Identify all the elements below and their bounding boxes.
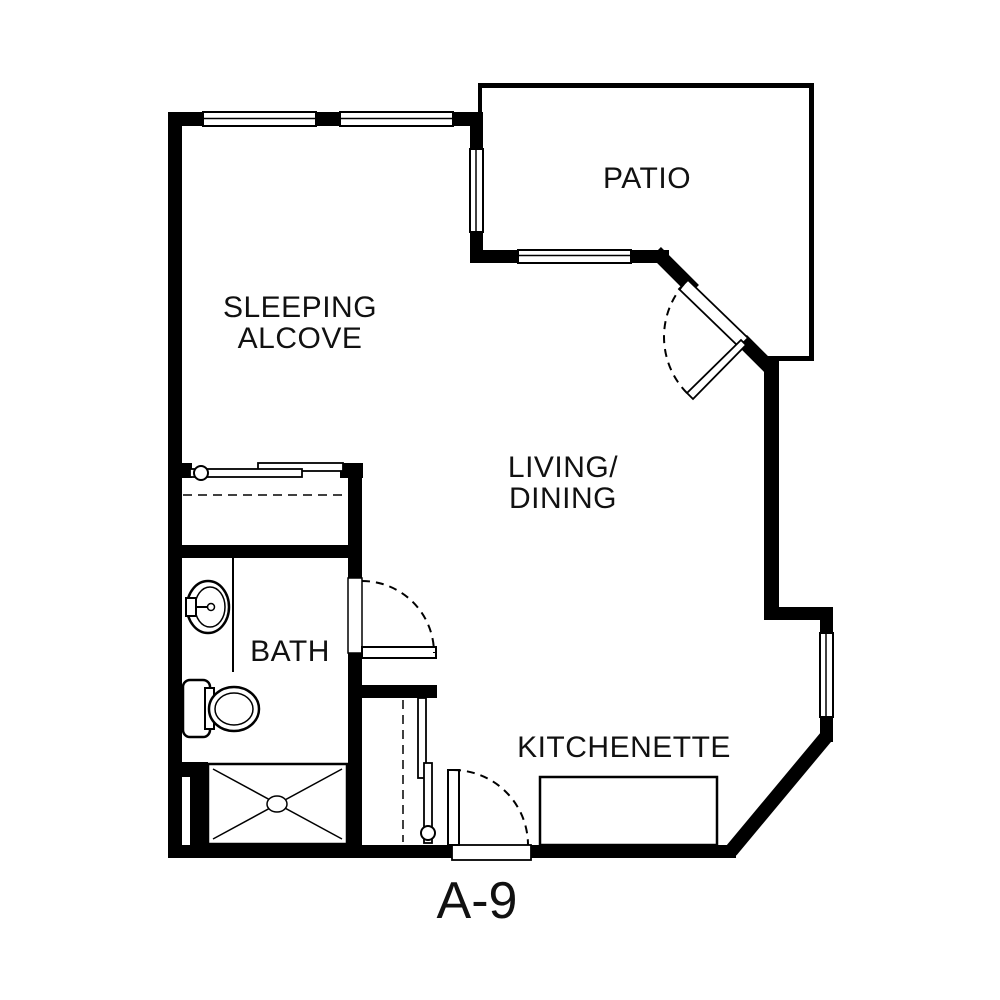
entry-door-leaf xyxy=(448,770,459,845)
ne-corner-block xyxy=(470,124,483,150)
bath-east-wall-upper xyxy=(348,463,362,578)
window-top-1 xyxy=(203,112,316,126)
patio-door-opening xyxy=(679,280,748,347)
bath-door-swing-arc xyxy=(362,581,434,653)
floor-plan-drawing: SLEEPING ALCOVE LIVING/ DINING PATIO BAT… xyxy=(0,0,1000,1000)
patio-wall-top xyxy=(478,83,814,88)
kitchenette-label: KITCHENETTE xyxy=(517,731,731,764)
living-patio-wall-west xyxy=(470,250,518,263)
sink-drain xyxy=(208,604,215,611)
sink-faucet-body xyxy=(186,598,196,616)
windows xyxy=(203,112,833,717)
upper-closet-handle xyxy=(194,466,208,480)
top-wall-right xyxy=(453,112,483,126)
lower-closet xyxy=(403,698,435,843)
bottom-wall-right xyxy=(531,845,736,858)
walls xyxy=(168,112,833,858)
sleeping-alcove-label-line1: SLEEPING xyxy=(223,291,377,324)
right-wall-mid xyxy=(764,356,779,620)
patio-door xyxy=(664,280,748,399)
right-wall-lower-a xyxy=(820,607,833,635)
bath-north-wall xyxy=(175,545,362,558)
patio-door-leaf xyxy=(687,340,746,399)
bottom-wall-left xyxy=(168,845,452,858)
shower-drain xyxy=(267,796,287,812)
toilet-shower-stub-wall xyxy=(175,762,208,777)
bath-door xyxy=(348,578,436,658)
patio-wall-right xyxy=(809,83,814,361)
patio-door-swing-arc xyxy=(664,284,689,395)
bath-east-wall-lower xyxy=(348,653,362,858)
top-wall-mid xyxy=(316,112,340,126)
kitchenette-counter xyxy=(540,777,717,845)
alcove-closet-wall-left xyxy=(168,463,192,478)
upper-closet xyxy=(183,463,347,495)
bath-label: BATH xyxy=(250,635,330,668)
bath-door-opening xyxy=(348,578,362,653)
entry-door-threshold xyxy=(452,845,531,860)
left-wall xyxy=(168,112,182,858)
entry-door xyxy=(448,770,531,860)
shower-side-block xyxy=(190,777,208,847)
window-living-patio xyxy=(518,250,631,263)
window-right-lower xyxy=(820,633,833,717)
patio-wall-bottom-connector xyxy=(778,356,814,361)
patio-label: PATIO xyxy=(603,162,691,195)
bath-fixtures xyxy=(183,558,347,844)
entry-door-swing-arc xyxy=(453,770,528,845)
patio-outline xyxy=(478,83,814,361)
sleeping-alcove-label-line2: ALCOVE xyxy=(238,322,363,355)
floor-plan: SLEEPING ALCOVE LIVING/ DINING PATIO BAT… xyxy=(0,0,1000,1000)
patio-wall-left-stub xyxy=(478,83,482,115)
lower-closet-handle xyxy=(421,826,435,840)
living-dining-label-line2: DINING xyxy=(509,482,617,515)
unit-number-label: A-9 xyxy=(437,872,518,930)
window-patio-left xyxy=(470,149,483,232)
bottom-right-diagonal-wall xyxy=(731,737,826,851)
window-top-2 xyxy=(340,112,453,126)
living-dining-label-line1: LIVING/ xyxy=(508,451,618,484)
closet-top-wall xyxy=(348,685,437,698)
bath-door-leaf xyxy=(362,647,436,658)
